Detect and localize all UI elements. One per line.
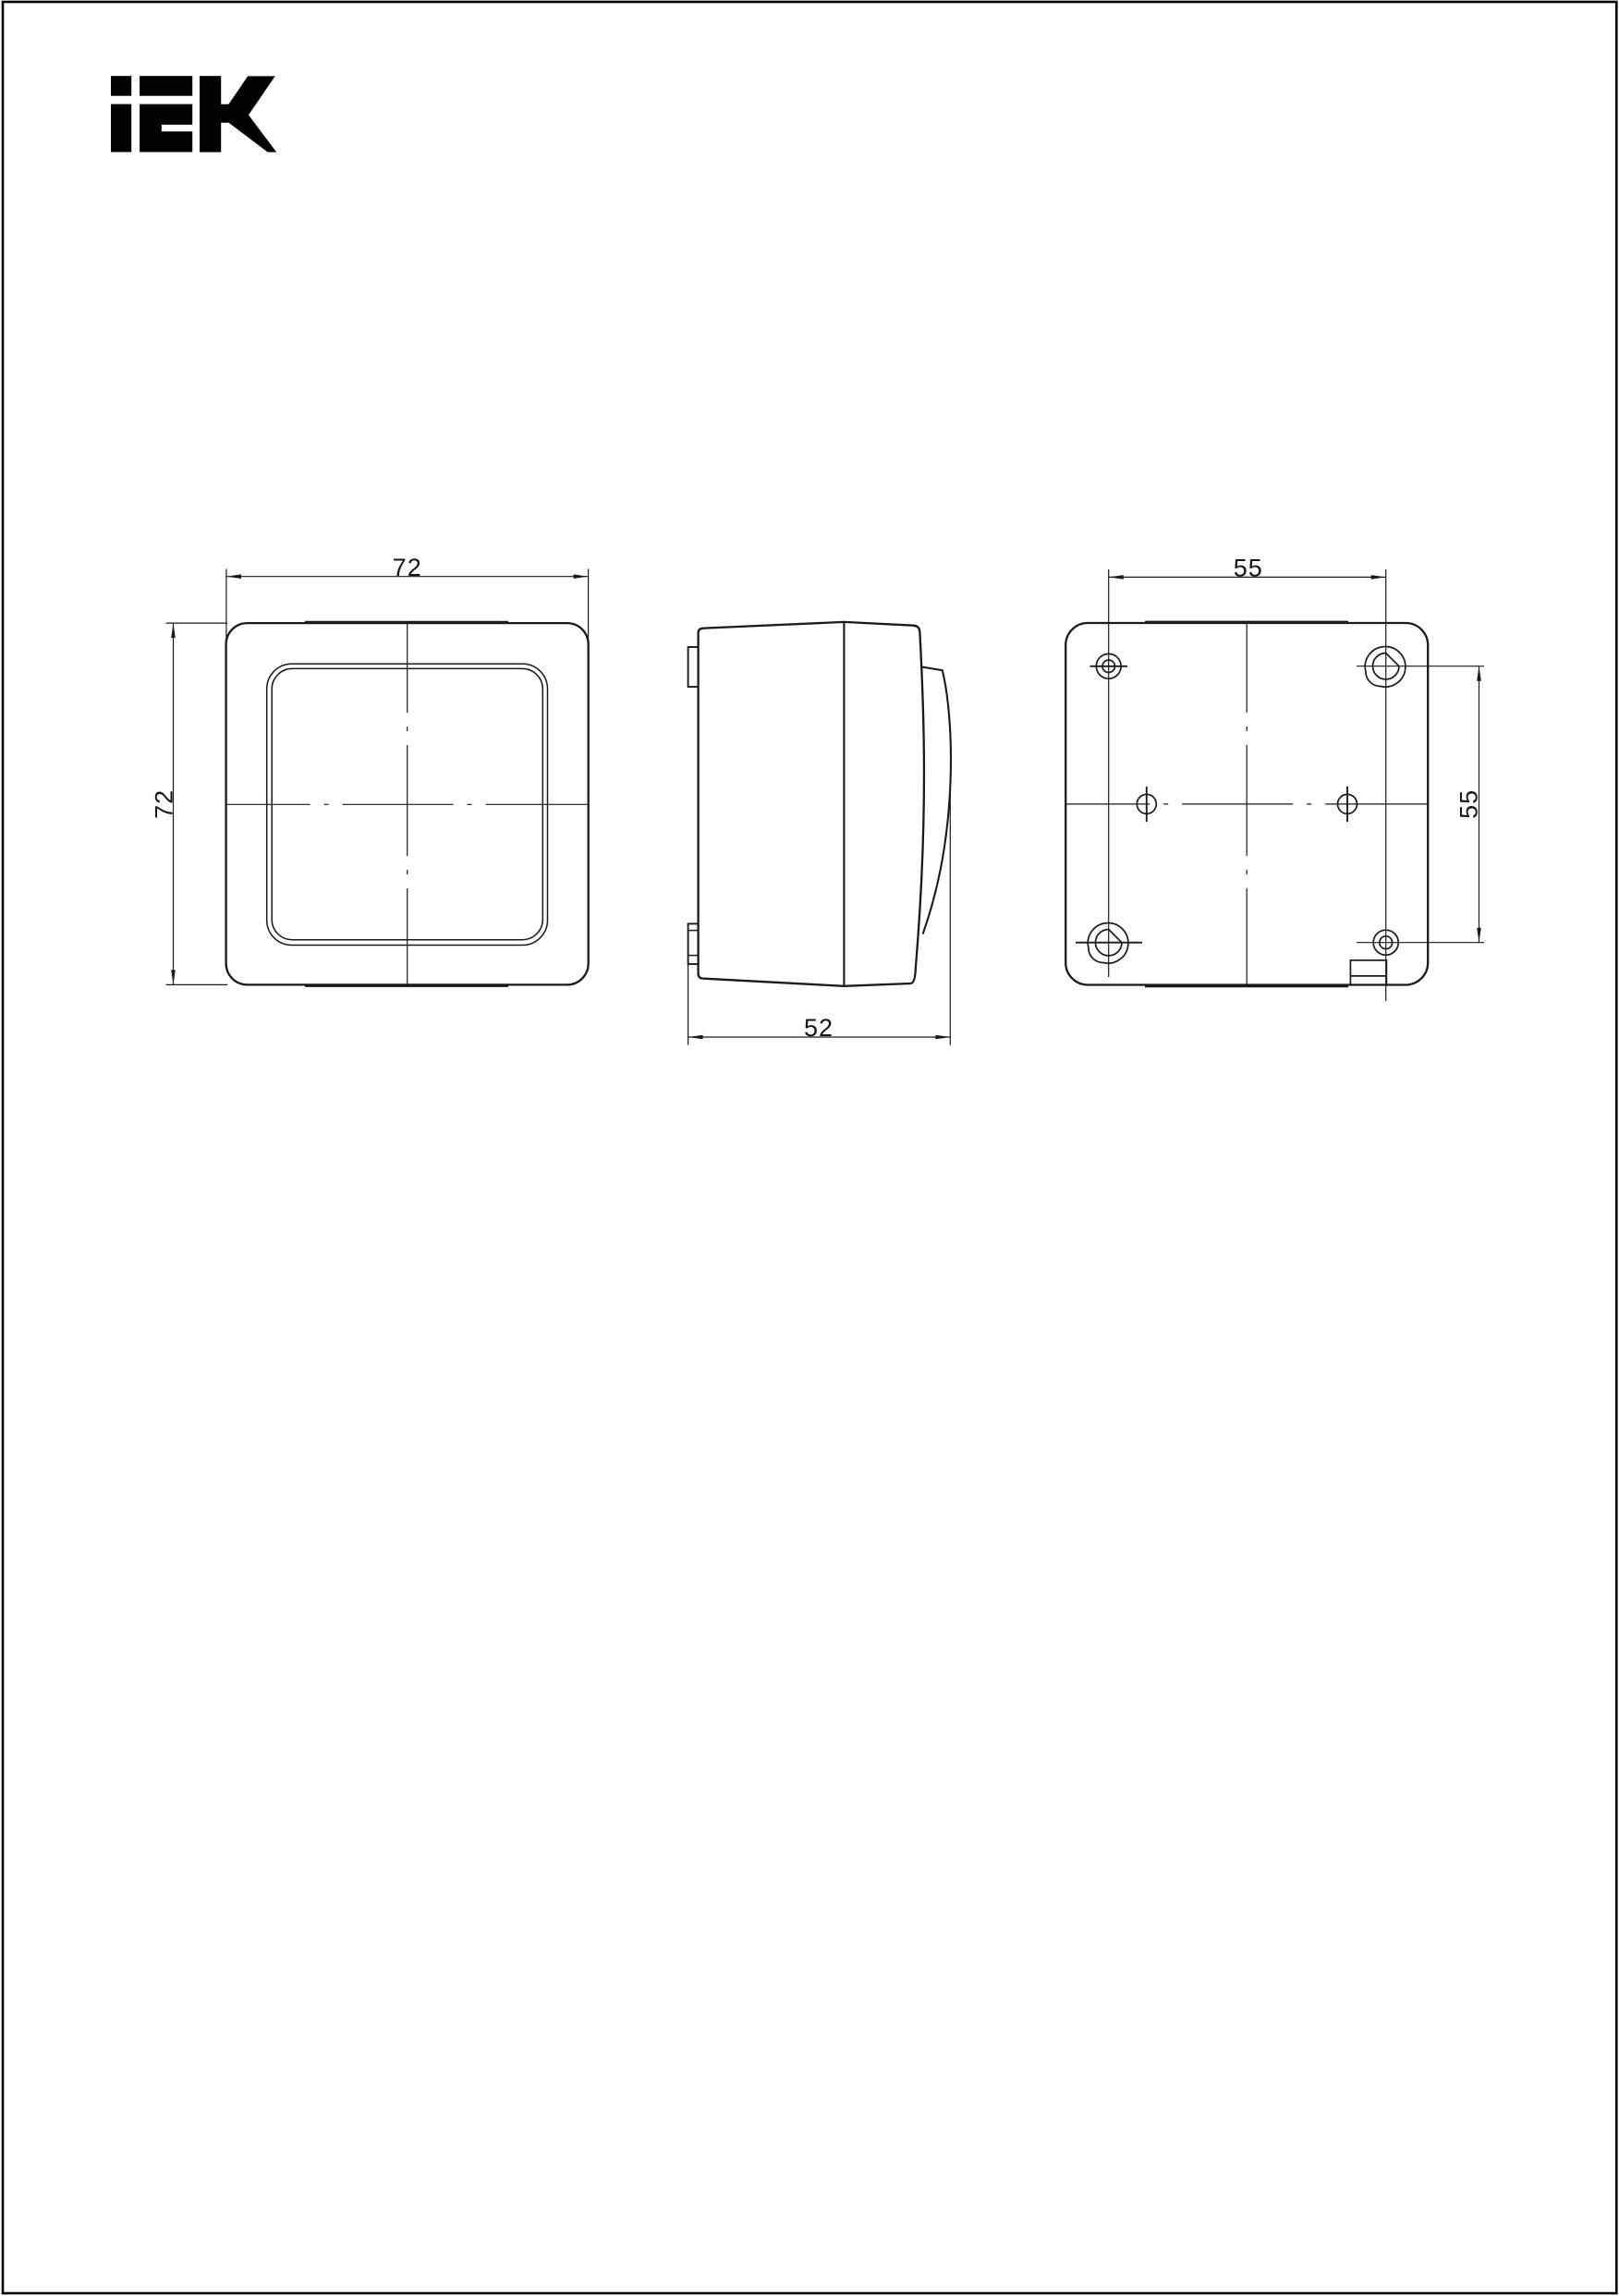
svg-text:55: 55 bbox=[1455, 789, 1482, 819]
svg-text:72: 72 bbox=[150, 789, 177, 819]
svg-text:72: 72 bbox=[393, 554, 422, 581]
svg-text:55: 55 bbox=[1234, 554, 1263, 581]
svg-text:52: 52 bbox=[804, 1014, 834, 1042]
